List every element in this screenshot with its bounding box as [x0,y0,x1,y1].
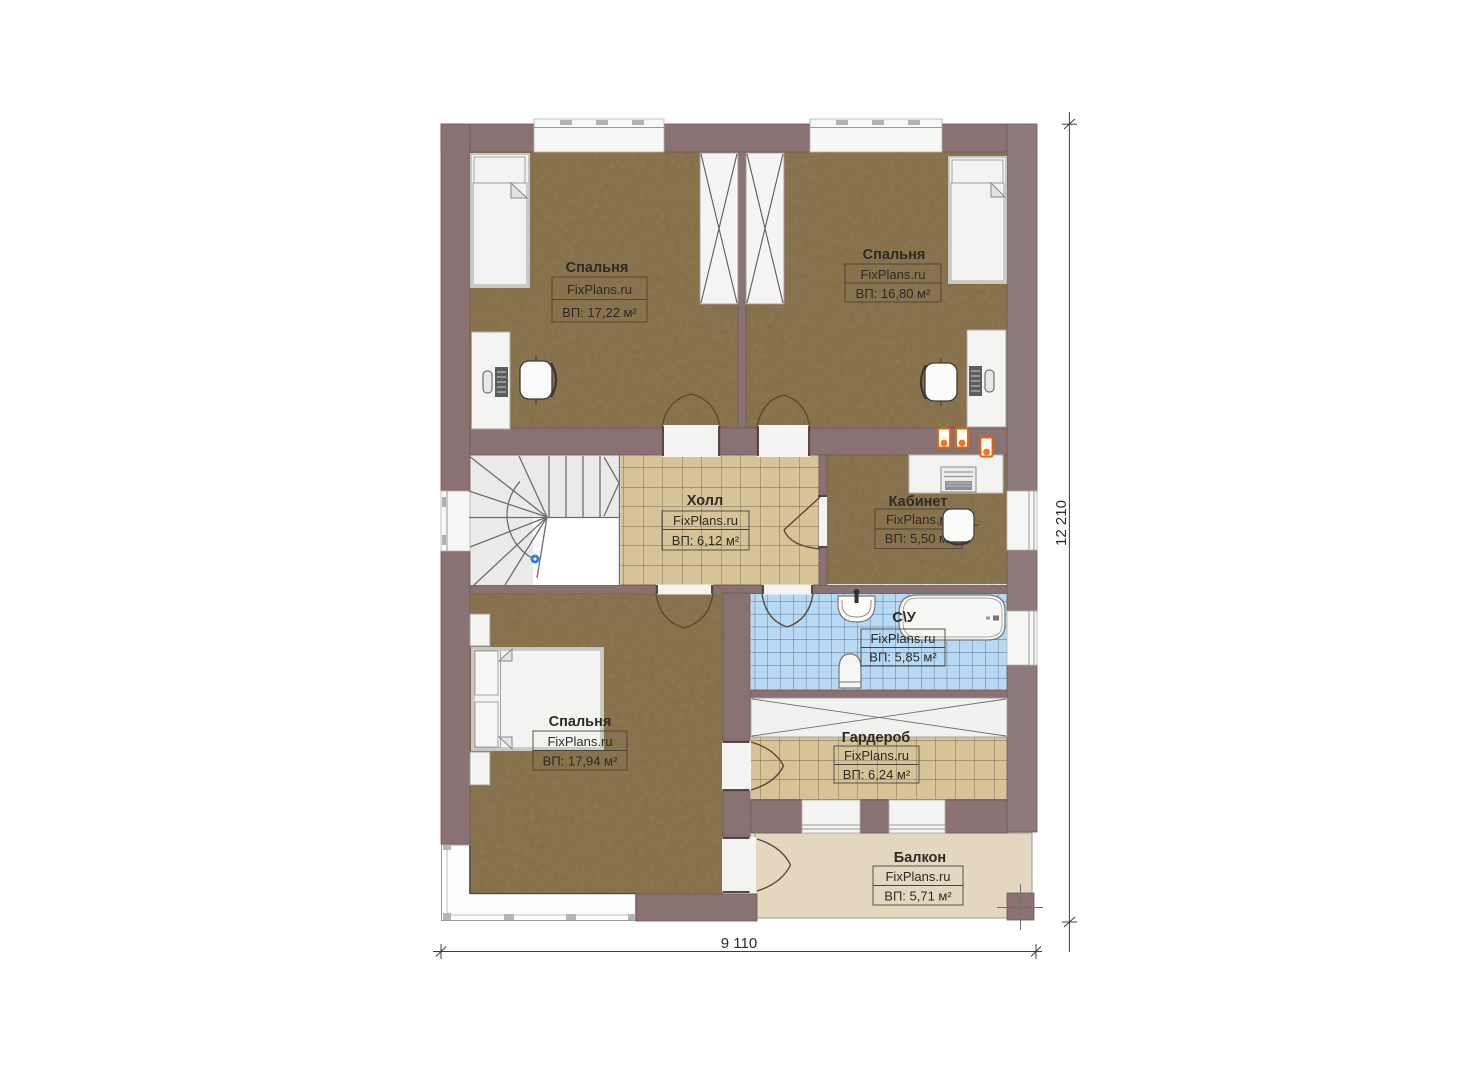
svg-text:FixPlans.ru: FixPlans.ru [860,267,925,282]
svg-text:9 110: 9 110 [721,935,757,952]
svg-text:С\У: С\У [892,610,917,626]
svg-text:ВП: 6,12 м²: ВП: 6,12 м² [672,533,740,548]
svg-text:FixPlans.ru: FixPlans.ru [547,734,612,749]
svg-text:Холл: Холл [687,493,723,509]
svg-text:Гардероб: Гардероб [842,730,911,746]
svg-text:ВП: 5,71 м²: ВП: 5,71 м² [884,889,952,904]
svg-text:FixPlans.ru: FixPlans.ru [673,513,738,528]
svg-text:Кабинет: Кабинет [889,494,948,510]
svg-text:Балкон: Балкон [894,850,946,866]
svg-text:FixPlans.ru: FixPlans.ru [567,282,632,297]
svg-text:Спальня: Спальня [566,260,629,276]
svg-text:ВП: 5,85 м²: ВП: 5,85 м² [869,650,937,665]
svg-text:Спальня: Спальня [549,714,612,730]
svg-text:FixPlans.ru: FixPlans.ru [885,869,950,884]
svg-text:Спальня: Спальня [863,247,926,263]
svg-text:ВП: 16,80 м²: ВП: 16,80 м² [856,286,931,301]
svg-text:FixPlans.ru: FixPlans.ru [844,748,909,763]
svg-text:ВП: 17,22 м²: ВП: 17,22 м² [562,305,637,320]
svg-text:12 210: 12 210 [1053,500,1070,546]
svg-text:ВП: 17,94 м²: ВП: 17,94 м² [543,754,618,769]
svg-text:FixPlans.ru: FixPlans.ru [870,631,935,646]
svg-text:ВП: 6,24 м²: ВП: 6,24 м² [843,767,911,782]
